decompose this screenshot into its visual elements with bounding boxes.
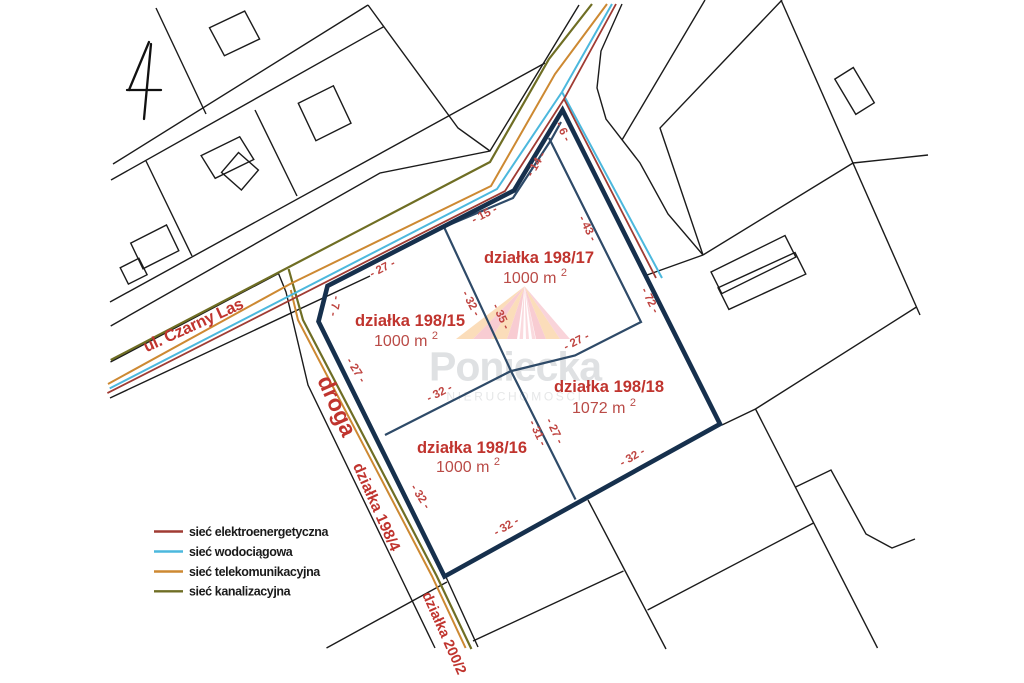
svg-text:działka 198/16: działka 198/16 <box>417 439 527 457</box>
svg-text:1000 m 2: 1000 m 2 <box>374 330 438 350</box>
svg-text:sieć elektroenergetyczna: sieć elektroenergetyczna <box>189 525 330 539</box>
svg-text:1072 m 2: 1072 m 2 <box>572 397 636 417</box>
svg-text:sieć kanalizacyjna: sieć kanalizacyjna <box>189 585 292 599</box>
svg-text:działka 198/17: działka 198/17 <box>484 249 594 267</box>
svg-text:1000 m 2: 1000 m 2 <box>503 267 567 287</box>
svg-text:- 7 -: - 7 - <box>327 295 342 317</box>
svg-text:działka 198/15: działka 198/15 <box>355 312 465 330</box>
svg-text:sieć wodociągowa: sieć wodociągowa <box>189 545 294 559</box>
svg-text:sieć telekomunikacyjna: sieć telekomunikacyjna <box>189 565 321 579</box>
svg-text:działka 198/18: działka 198/18 <box>554 378 664 396</box>
svg-text:droga: droga <box>312 371 362 440</box>
svg-text:1000 m 2: 1000 m 2 <box>436 456 500 476</box>
